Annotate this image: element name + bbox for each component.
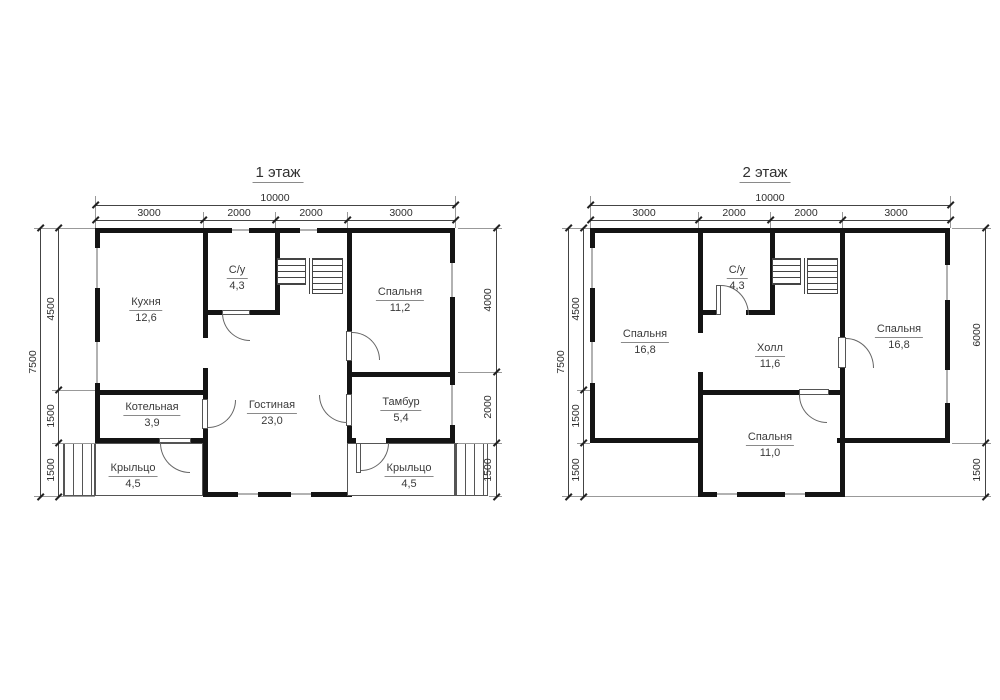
room-name: Спальня	[875, 322, 923, 338]
dim-label: 4000	[482, 288, 494, 311]
wall-segment	[95, 390, 208, 395]
room-name: Котельная	[123, 400, 180, 416]
dim-line	[95, 205, 455, 206]
wall-segment	[590, 438, 703, 443]
wall-segment	[347, 372, 455, 377]
wall-segment	[250, 310, 280, 315]
stairs-divider	[804, 258, 805, 294]
extension-line	[95, 196, 96, 228]
dim-label: 3000	[884, 207, 907, 219]
dim-line	[496, 228, 497, 497]
room-area: 4,5	[109, 477, 158, 491]
extension-line	[34, 228, 95, 229]
extension-line	[455, 196, 456, 228]
room-area: 23,0	[247, 414, 297, 428]
room-label-boiler: Котельная 3,9	[123, 400, 180, 431]
window	[945, 370, 950, 403]
porch-steps	[63, 443, 95, 496]
dim-label: 1500	[482, 458, 494, 481]
wall-segment	[203, 428, 208, 497]
window	[945, 265, 950, 300]
room-name: Крыльцо	[109, 461, 158, 477]
room-label-kitchen: Кухня 12,6	[129, 295, 162, 326]
dim-label: 2000	[722, 207, 745, 219]
dim-label-total-height: 7500	[555, 350, 567, 373]
dim-label: 2000	[794, 207, 817, 219]
room-area: 3,9	[123, 416, 180, 430]
room-name: Спальня	[621, 327, 669, 343]
window	[238, 492, 258, 497]
window	[232, 228, 249, 233]
dim-label: 2000	[227, 207, 250, 219]
window	[95, 248, 100, 288]
window	[717, 492, 737, 497]
window	[300, 228, 317, 233]
stairs-flight	[807, 258, 838, 294]
wall-segment	[746, 310, 775, 315]
dim-line	[40, 228, 41, 497]
window	[450, 263, 455, 297]
extension-line	[590, 196, 591, 228]
floor-title-1: 1 этаж	[253, 164, 304, 183]
door-arc	[319, 395, 347, 423]
room-label-porch-right: Крыльцо 4,5	[385, 461, 434, 492]
room-label-porch-left: Крыльцо 4,5	[109, 461, 158, 492]
wall-segment	[698, 390, 800, 395]
dim-line	[583, 228, 584, 497]
window	[590, 342, 595, 383]
dim-label: 6000	[971, 323, 983, 346]
door-leaf	[838, 337, 846, 368]
floor-plans-canvas: 1 этаж 2 этаж	[0, 0, 1000, 700]
window	[450, 385, 455, 425]
dim-label: 3000	[389, 207, 412, 219]
dim-label: 1500	[570, 458, 582, 481]
dim-label: 2000	[299, 207, 322, 219]
wall-segment	[203, 228, 208, 338]
extension-line	[845, 496, 991, 497]
room-label-bathroom-1: С/у 4,3	[227, 263, 248, 294]
dim-label: 3000	[137, 207, 160, 219]
wall-segment	[203, 492, 352, 497]
dim-line	[568, 228, 569, 497]
wall-segment	[203, 310, 222, 315]
door-arc	[846, 338, 874, 368]
room-name: С/у	[727, 263, 748, 279]
dim-label-total-width: 10000	[755, 192, 784, 204]
room-label-bedroom-left: Спальня 16,8	[621, 327, 669, 358]
dim-label: 4500	[570, 297, 582, 320]
dim-line	[590, 205, 950, 206]
wall-segment	[203, 368, 208, 400]
wall-segment	[828, 390, 845, 395]
room-area: 4,5	[385, 477, 434, 491]
dim-label: 1500	[45, 404, 57, 427]
room-label-bathroom-2: С/у 4,3	[727, 263, 748, 294]
wall-segment	[698, 310, 716, 315]
dim-label: 1500	[971, 458, 983, 481]
stairs-flight	[277, 258, 306, 285]
room-label-bedroom-1: Спальня 11,2	[376, 285, 424, 316]
window	[590, 248, 595, 288]
dim-label: 3000	[632, 207, 655, 219]
room-name: Тамбур	[380, 395, 421, 411]
wall-segment	[840, 368, 845, 497]
wall-segment	[945, 228, 950, 443]
stairs-divider	[309, 258, 310, 294]
door-arc	[799, 395, 827, 423]
room-name: С/у	[227, 263, 248, 279]
room-area: 11,2	[376, 301, 424, 315]
dim-label: 1500	[570, 404, 582, 427]
window	[785, 492, 805, 497]
room-label-bedroom-bottom: Спальня 11,0	[746, 430, 794, 461]
room-name: Спальня	[376, 285, 424, 301]
room-area: 4,3	[727, 279, 748, 293]
room-area: 5,4	[380, 411, 421, 425]
wall-segment	[837, 438, 950, 443]
room-name: Холл	[755, 341, 785, 357]
room-name: Кухня	[129, 295, 162, 311]
door-arc	[222, 313, 250, 341]
room-area: 16,8	[621, 343, 669, 357]
dim-label: 2000	[482, 395, 494, 418]
window	[291, 492, 311, 497]
room-label-bedroom-right: Спальня 16,8	[875, 322, 923, 353]
dim-label-total-width: 10000	[260, 192, 289, 204]
dim-label: 1500	[45, 458, 57, 481]
room-label-tambour: Тамбур 5,4	[380, 395, 421, 426]
stairs-flight	[772, 258, 801, 285]
window	[95, 342, 100, 383]
room-name: Спальня	[746, 430, 794, 446]
room-area: 12,6	[129, 311, 162, 325]
room-area: 16,8	[875, 338, 923, 352]
floor-title-2: 2 этаж	[740, 164, 791, 183]
dim-label: 4500	[45, 297, 57, 320]
room-label-living: Гостиная 23,0	[247, 398, 297, 429]
stairs-flight	[312, 258, 343, 294]
wall-segment	[840, 228, 845, 338]
room-name: Гостиная	[247, 398, 297, 414]
extension-line	[34, 496, 95, 497]
room-label-hall: Холл 11,6	[755, 341, 785, 372]
door-arc	[208, 400, 236, 428]
wall-segment	[698, 228, 703, 333]
dim-label-total-height: 7500	[27, 350, 39, 373]
door-arc	[352, 332, 380, 360]
dim-line	[985, 228, 986, 497]
room-area: 11,6	[755, 357, 785, 371]
room-name: Крыльцо	[385, 461, 434, 477]
wall-segment	[347, 360, 352, 395]
extension-line	[950, 196, 951, 228]
dim-line	[58, 228, 59, 497]
wall-segment	[347, 228, 352, 332]
room-area: 4,3	[227, 279, 248, 293]
room-area: 11,0	[746, 446, 794, 460]
